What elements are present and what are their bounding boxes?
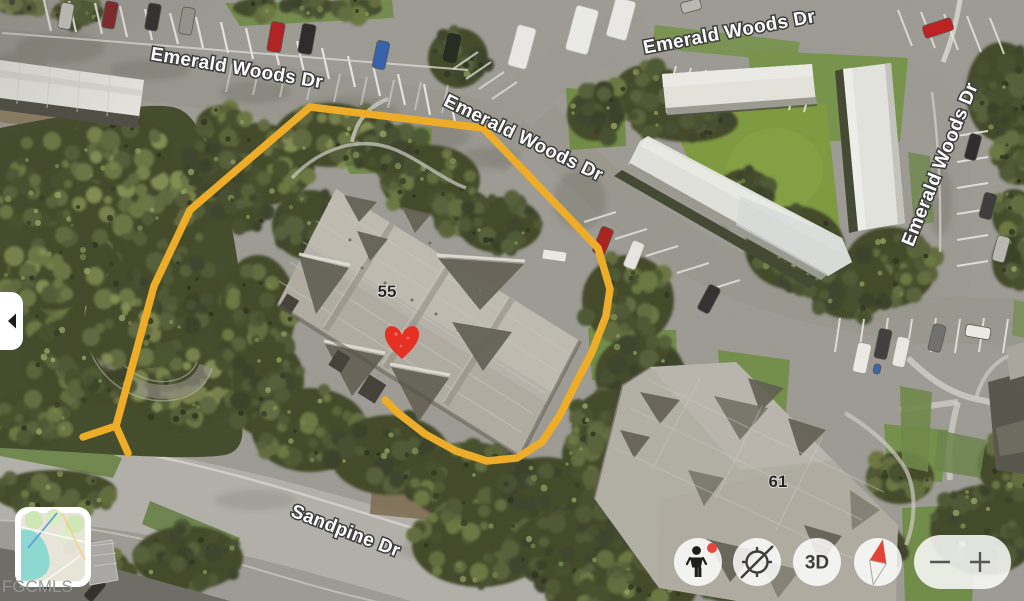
svg-text:3D: 3D (805, 553, 829, 574)
svg-text:FGCMLS: FGCMLS (2, 577, 73, 596)
svg-text:55: 55 (378, 282, 397, 301)
svg-text:61: 61 (769, 472, 788, 491)
